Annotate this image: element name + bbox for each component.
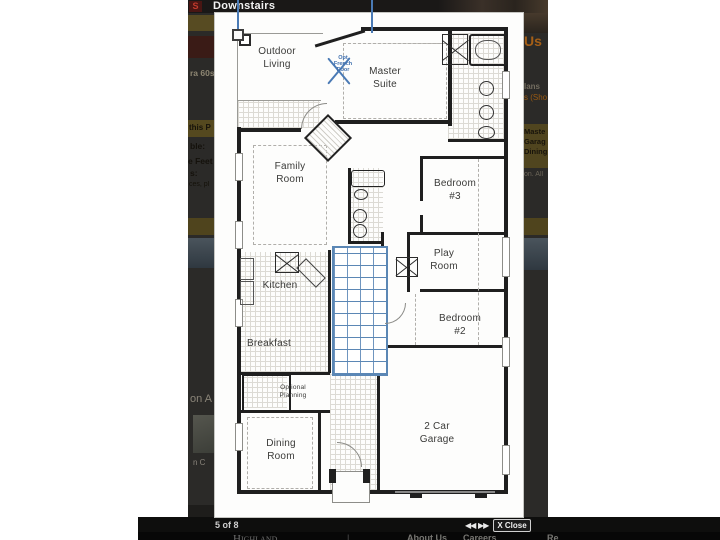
garage-door-post (475, 494, 487, 498)
garage-door-post (410, 494, 422, 498)
dimmed-photo (193, 415, 215, 453)
dimmed-band (523, 218, 548, 235)
dimmed-band (188, 218, 215, 235)
wall-bath-bottom (448, 139, 508, 142)
room-label-family-room: Family Room (250, 160, 330, 186)
hall-sink (353, 209, 367, 223)
floorplan-image: Outdoor Living Master Suite Family Room … (215, 13, 523, 517)
dimmed-text: on. All (524, 171, 543, 178)
dimmed-text: Dining (524, 147, 547, 156)
dimmed-band (188, 36, 215, 58)
previous-image-button[interactable]: ◀◀ (465, 521, 475, 530)
porch-pier (363, 469, 370, 483)
wall-hallbath-bottom (348, 241, 384, 244)
room-label-garage: 2 Car Garage (397, 420, 477, 446)
window (502, 71, 510, 99)
room-label-bedroom-3: Bedroom #3 (415, 177, 495, 203)
door-arc (385, 303, 406, 324)
footer-link-partial[interactable]: Re (547, 533, 559, 540)
footer-link-careers[interactable]: Careers (463, 533, 497, 540)
dimmed-text: lans (524, 82, 540, 91)
dimmed-nav-letter: S (189, 1, 202, 12)
lightbox-bottom-bar: 5 of 8 ◀◀ ▶▶ X Close (138, 517, 720, 532)
close-button[interactable]: X Close (493, 519, 531, 532)
window (502, 445, 510, 475)
selection-line-right (371, 0, 373, 33)
kitchen-counter (240, 258, 254, 280)
dimmed-photo (188, 238, 215, 268)
selection-handle[interactable] (232, 29, 244, 41)
room-label-kitchen: Kitchen (240, 279, 320, 292)
dimmed-band (188, 505, 215, 517)
wall-playroom-top (407, 232, 508, 235)
page-footer: Highland | About Us Careers Re (138, 532, 720, 540)
lightbox-backdrop-left: ra 60s this P ble: e Feet s: ces, pl on … (188, 13, 215, 517)
dimmed-text: on A (190, 393, 212, 405)
staircase (332, 246, 388, 376)
sink (479, 81, 494, 96)
page: { "lightbox": { "title": "Downstairs", "… (0, 0, 720, 540)
dimmed-photo (523, 13, 548, 33)
opt-french-door-note: Opt French Door (328, 55, 358, 73)
dimmed-text: Maste (524, 127, 545, 136)
wall-bedroom3-top (420, 156, 508, 159)
sink (479, 105, 494, 120)
wall-bedroom2-top (420, 289, 508, 292)
porch-pier (329, 469, 336, 483)
pagination-label: 5 of 8 (215, 520, 239, 530)
bathtub-basin (475, 40, 501, 60)
dimmed-text: n C (193, 458, 205, 467)
hall-toilet (354, 189, 368, 200)
next-image-button[interactable]: ▶▶ (478, 521, 488, 530)
dimmed-text: s (Sho (524, 93, 547, 102)
porch-wall (237, 100, 321, 101)
dimmed-text: s: (190, 168, 198, 178)
hall-bathtub (351, 170, 385, 187)
shower (442, 34, 468, 65)
dimmed-text: this P (189, 123, 211, 132)
wall-stairs-left (328, 250, 331, 373)
toilet (478, 126, 495, 139)
dimmed-text: Garag (524, 137, 546, 146)
dimmed-text: ces, pl (189, 181, 209, 188)
wall-master-bottom (335, 120, 450, 124)
window (235, 153, 243, 181)
window (502, 237, 510, 277)
footer-separator: | (347, 533, 349, 540)
dimmed-text: ble: (190, 141, 205, 151)
dimmed-band (188, 15, 215, 31)
kitchen-island (275, 252, 299, 273)
garage-door (395, 491, 495, 493)
room-label-dining-room: Dining Room (241, 437, 321, 463)
room-label-play-room: Play Room (404, 247, 484, 273)
hall-sink (353, 224, 367, 238)
lightbox-title: Downstairs (213, 0, 275, 13)
wall-family-top (237, 128, 301, 132)
window (235, 221, 243, 249)
dimmed-photo-top-right (438, 0, 548, 13)
wall-top (361, 27, 508, 31)
dimmed-text: Us (524, 33, 542, 49)
wall-garage-top (377, 345, 508, 348)
room-label-bedroom-2: Bedroom #2 (420, 312, 500, 338)
dimmed-text: ra 60s (190, 68, 215, 78)
dashed-line (415, 294, 416, 345)
lightbox-backdrop-right: Us lans s (Sho Maste Garag Dining on. Al… (523, 13, 548, 517)
bathtub (469, 34, 507, 66)
window (502, 337, 510, 367)
dimmed-text: e Feet (188, 156, 213, 166)
room-label-outdoor-living: Outdoor Living (237, 45, 317, 71)
dimmed-photo (523, 238, 548, 270)
room-label-breakfast: Breakfast (229, 337, 309, 350)
room-label-optional-planning: Optional Planning (263, 384, 323, 400)
footer-brand: Highland (233, 533, 277, 540)
footer-link-about-us[interactable]: About Us (407, 533, 447, 540)
